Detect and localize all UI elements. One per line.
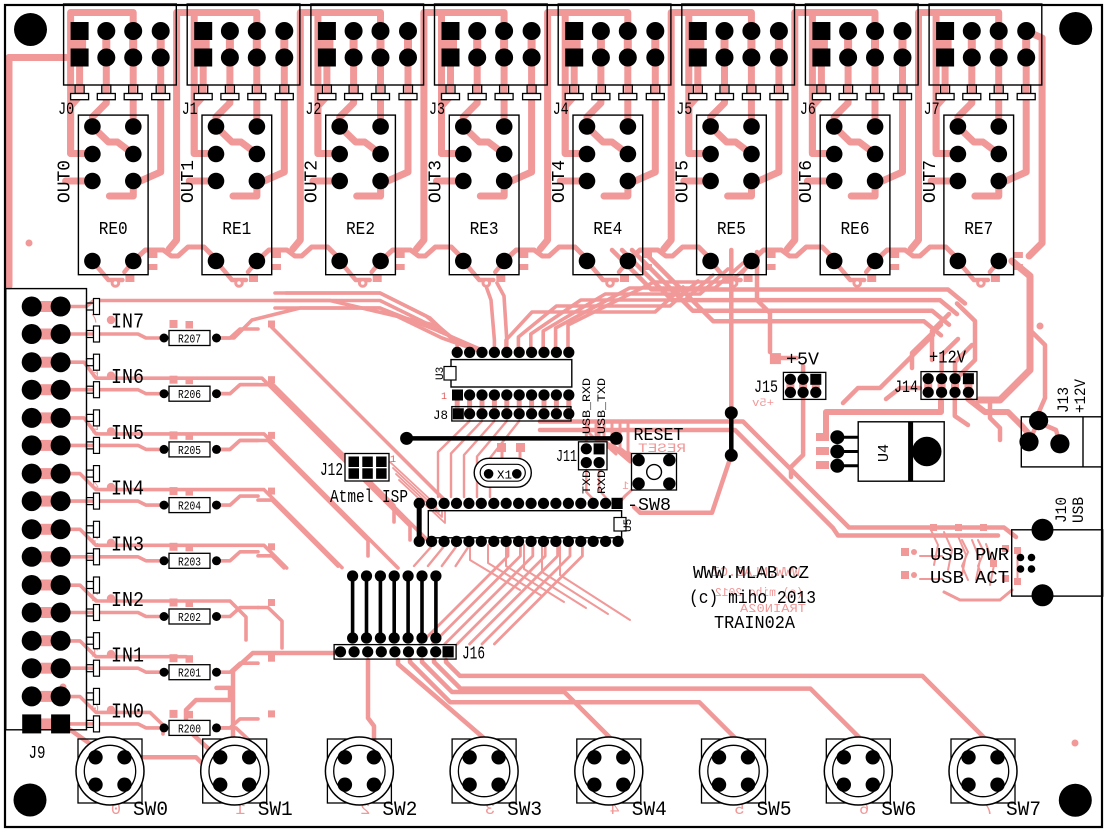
svg-text:OUT2: OUT2 [303, 160, 323, 203]
svg-text:+12V: +12V [1072, 379, 1090, 413]
svg-text:J8: J8 [433, 408, 448, 423]
svg-text:RESET: RESET [634, 426, 684, 446]
svg-text:+5v: +5v [752, 398, 774, 410]
svg-text:J12: J12 [320, 461, 343, 481]
svg-text:RE0: RE0 [99, 220, 128, 240]
svg-text:J2: J2 [305, 100, 321, 120]
svg-text:R200: R200 [178, 722, 201, 736]
svg-text:RE3: RE3 [470, 220, 499, 240]
svg-text:IN0: IN0 [111, 701, 144, 724]
svg-text:-SW8: -SW8 [627, 496, 671, 516]
svg-text:J1: J1 [182, 100, 198, 120]
svg-text:R205: R205 [178, 444, 201, 458]
svg-text:Atmel ISP: Atmel ISP [330, 488, 408, 508]
svg-text:WWW.MLAB.CZ: WWW.MLAB.CZ [693, 563, 809, 584]
svg-text:TRAIN02A: TRAIN02A [714, 613, 796, 634]
svg-text:RE2: RE2 [346, 220, 375, 240]
svg-text:U4: U4 [876, 444, 893, 462]
svg-text:J14: J14 [894, 378, 918, 398]
svg-text:R206: R206 [178, 388, 201, 402]
svg-text:J10: J10 [1053, 497, 1071, 523]
svg-text:SW0: SW0 [133, 799, 168, 822]
svg-text:J7: J7 [924, 100, 940, 120]
svg-text:U3: U3 [435, 367, 447, 380]
svg-text:IN5: IN5 [111, 423, 144, 446]
svg-text:J0: J0 [58, 100, 74, 120]
svg-text:J5: J5 [676, 100, 692, 120]
svg-text:(c) miho 2013: (c) miho 2013 [689, 588, 816, 609]
svg-text:USB: USB [1070, 497, 1088, 523]
svg-text:1: 1 [390, 455, 396, 466]
svg-text:1: 1 [441, 392, 447, 403]
svg-text:J15: J15 [754, 378, 778, 398]
svg-text:R202: R202 [178, 611, 201, 625]
svg-text:SW1: SW1 [258, 799, 293, 822]
svg-text:+12V: +12V [929, 349, 966, 369]
svg-text:OUT7: OUT7 [921, 160, 941, 203]
svg-text:J3: J3 [429, 100, 445, 120]
svg-text:OUT4: OUT4 [550, 160, 570, 203]
svg-text:J9: J9 [29, 743, 46, 764]
svg-text:J6: J6 [800, 100, 816, 120]
svg-text:USB_RXD: USB_RXD [582, 378, 594, 434]
svg-text:IN1: IN1 [111, 646, 144, 669]
svg-text:J11: J11 [556, 448, 577, 467]
svg-text:1: 1 [622, 481, 629, 493]
svg-text:RXD: RXD [597, 470, 609, 494]
svg-text:OUT1: OUT1 [179, 160, 199, 203]
svg-text:RE4: RE4 [593, 220, 622, 240]
svg-text:J4: J4 [553, 100, 569, 120]
svg-text:RE7: RE7 [964, 220, 993, 240]
svg-text:RE5: RE5 [717, 220, 746, 240]
svg-text:SW4: SW4 [632, 799, 667, 822]
svg-text:R201: R201 [178, 667, 201, 681]
svg-text:R203: R203 [178, 555, 201, 569]
svg-text:IN3: IN3 [111, 534, 144, 557]
svg-text:RE1: RE1 [222, 220, 251, 240]
svg-text:IN2: IN2 [111, 590, 144, 613]
svg-text:USB_TXD: USB_TXD [597, 378, 609, 434]
svg-text:SW6: SW6 [881, 799, 916, 822]
svg-text:IN4: IN4 [111, 479, 144, 502]
svg-text:+5V: +5V [786, 351, 819, 371]
svg-text:OUT3: OUT3 [426, 160, 446, 203]
svg-text:J13: J13 [1055, 387, 1073, 413]
svg-text:IN7: IN7 [111, 312, 144, 335]
svg-text:U5: U5 [623, 519, 635, 532]
svg-text:J16: J16 [462, 645, 485, 665]
svg-text:TXD: TXD [582, 470, 594, 494]
svg-text:USB ACT: USB ACT [930, 569, 1009, 589]
svg-text:R207: R207 [178, 333, 201, 347]
svg-text:SW5: SW5 [757, 799, 792, 822]
svg-text:OUT5: OUT5 [674, 160, 694, 203]
svg-text:SW3: SW3 [507, 799, 542, 822]
svg-text:RE6: RE6 [841, 220, 870, 240]
svg-text:OUT0: OUT0 [55, 160, 75, 203]
svg-text:USB PWR: USB PWR [930, 546, 1009, 566]
svg-text:SW7: SW7 [1006, 799, 1041, 822]
svg-text:OUT6: OUT6 [797, 160, 817, 203]
svg-text:IN6: IN6 [111, 367, 144, 390]
svg-text:R204: R204 [178, 500, 201, 514]
svg-text:X1: X1 [497, 469, 512, 483]
svg-text:SW2: SW2 [382, 799, 417, 822]
